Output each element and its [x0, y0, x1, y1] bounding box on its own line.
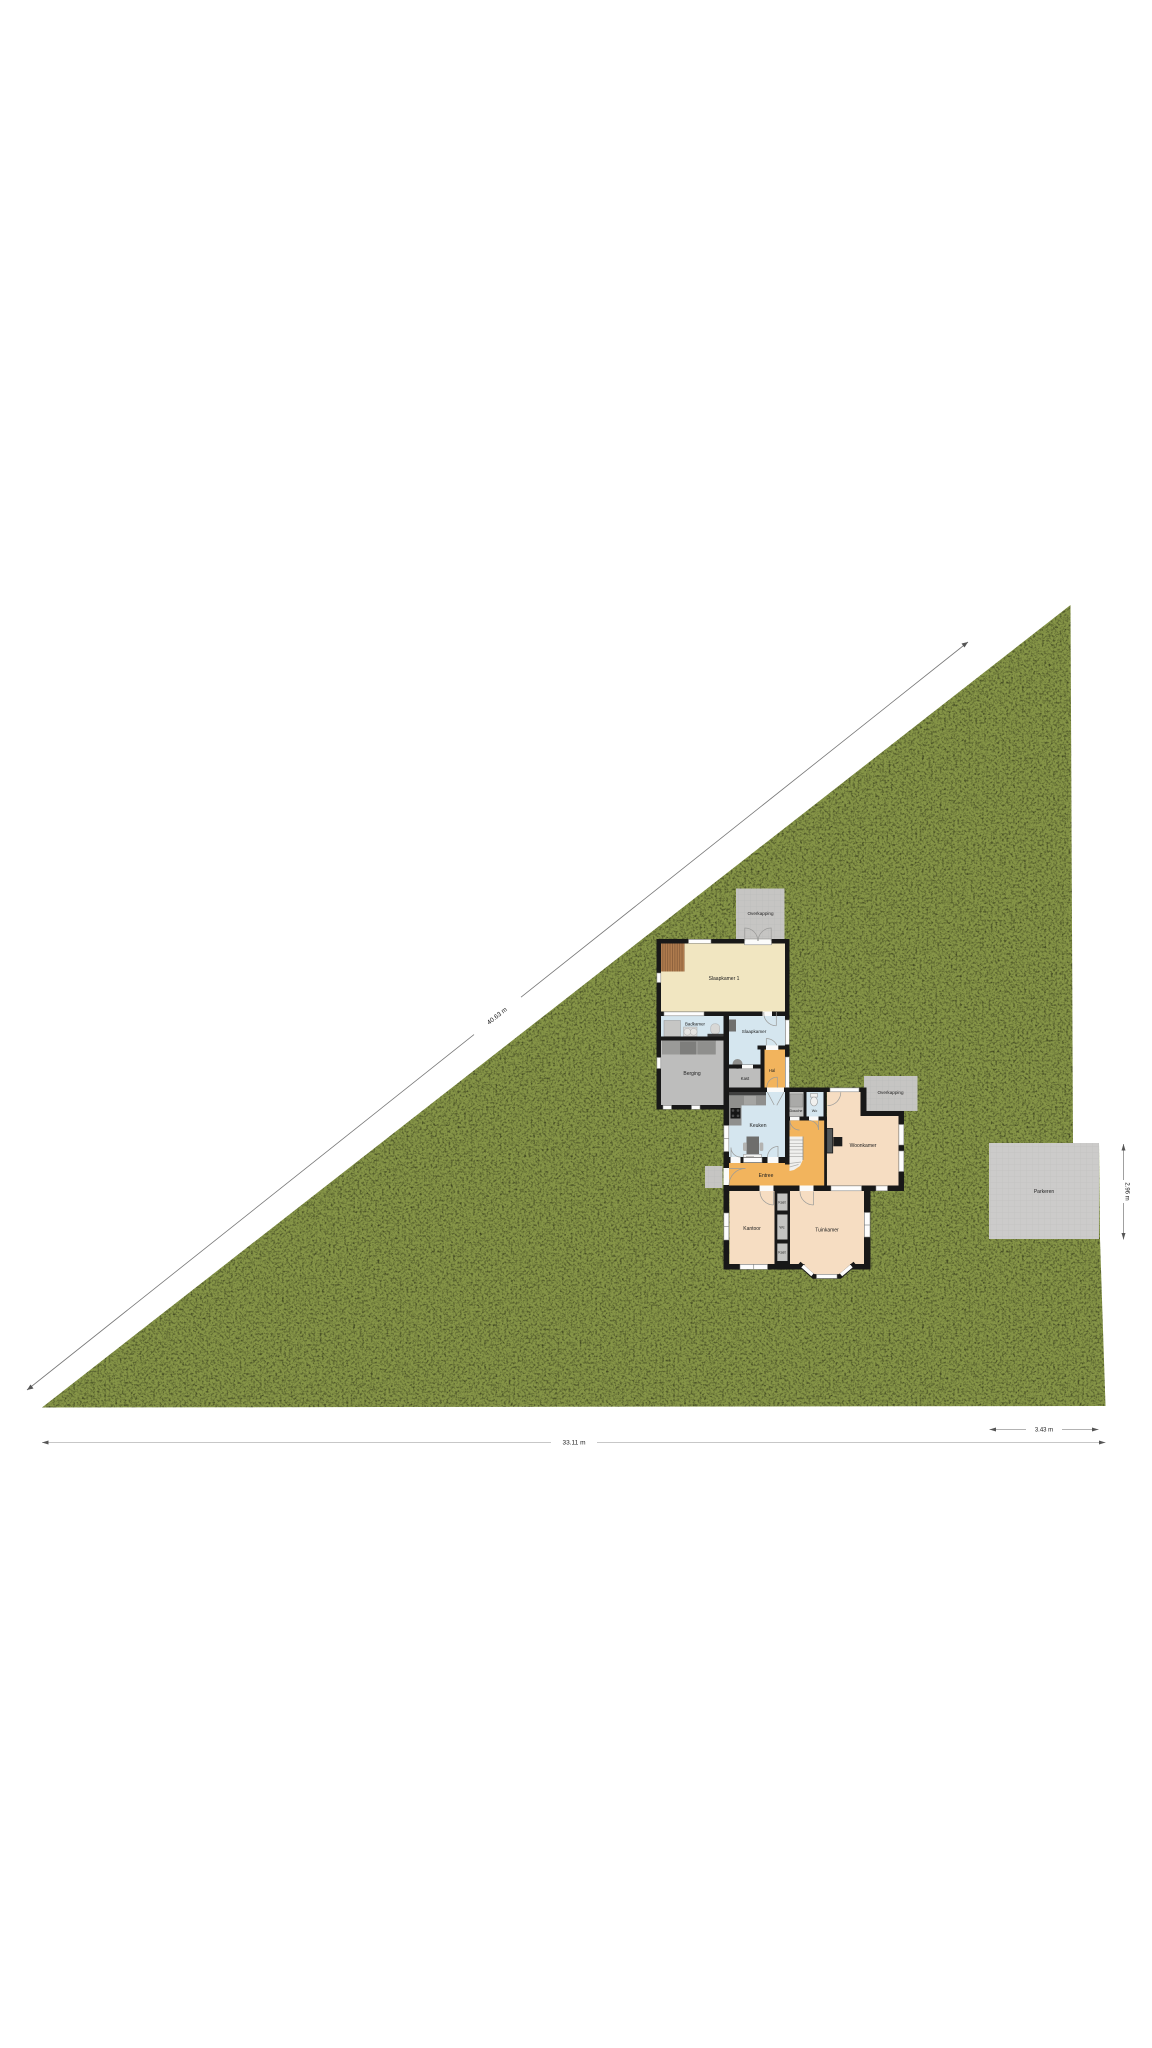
svg-text:Overkapping: Overkapping	[747, 911, 773, 916]
svg-text:Slaapkamer: Slaapkamer	[742, 1029, 767, 1034]
svg-text:Kast: Kast	[741, 1076, 750, 1081]
svg-text:3.43 m: 3.43 m	[1035, 1428, 1053, 1434]
svg-text:2.96 m: 2.96 m	[1124, 1182, 1130, 1200]
svg-text:Parkeren: Parkeren	[1034, 1189, 1055, 1195]
svg-text:Overkapping: Overkapping	[877, 1090, 903, 1095]
svg-text:Kast: Kast	[778, 1201, 785, 1205]
svg-text:Berging: Berging	[683, 1071, 700, 1077]
svg-text:Kast: Kast	[778, 1251, 785, 1255]
svg-text:Slaapkamer 1: Slaapkamer 1	[709, 976, 740, 982]
svg-text:Keuken: Keuken	[750, 1123, 767, 1129]
svg-text:Douche: Douche	[789, 1109, 802, 1113]
svg-text:Tuinkamer: Tuinkamer	[815, 1228, 839, 1234]
svg-text:Wc: Wc	[812, 1109, 818, 1113]
svg-text:Woonkamer: Woonkamer	[850, 1143, 877, 1149]
svg-text:Badkamer: Badkamer	[685, 1022, 706, 1027]
svg-text:Wc: Wc	[779, 1226, 784, 1230]
svg-text:Hal: Hal	[769, 1068, 775, 1073]
svg-text:Kantoor: Kantoor	[743, 1226, 761, 1232]
svg-text:33.11 m: 33.11 m	[562, 1440, 585, 1447]
svg-text:Entree: Entree	[759, 1173, 774, 1179]
